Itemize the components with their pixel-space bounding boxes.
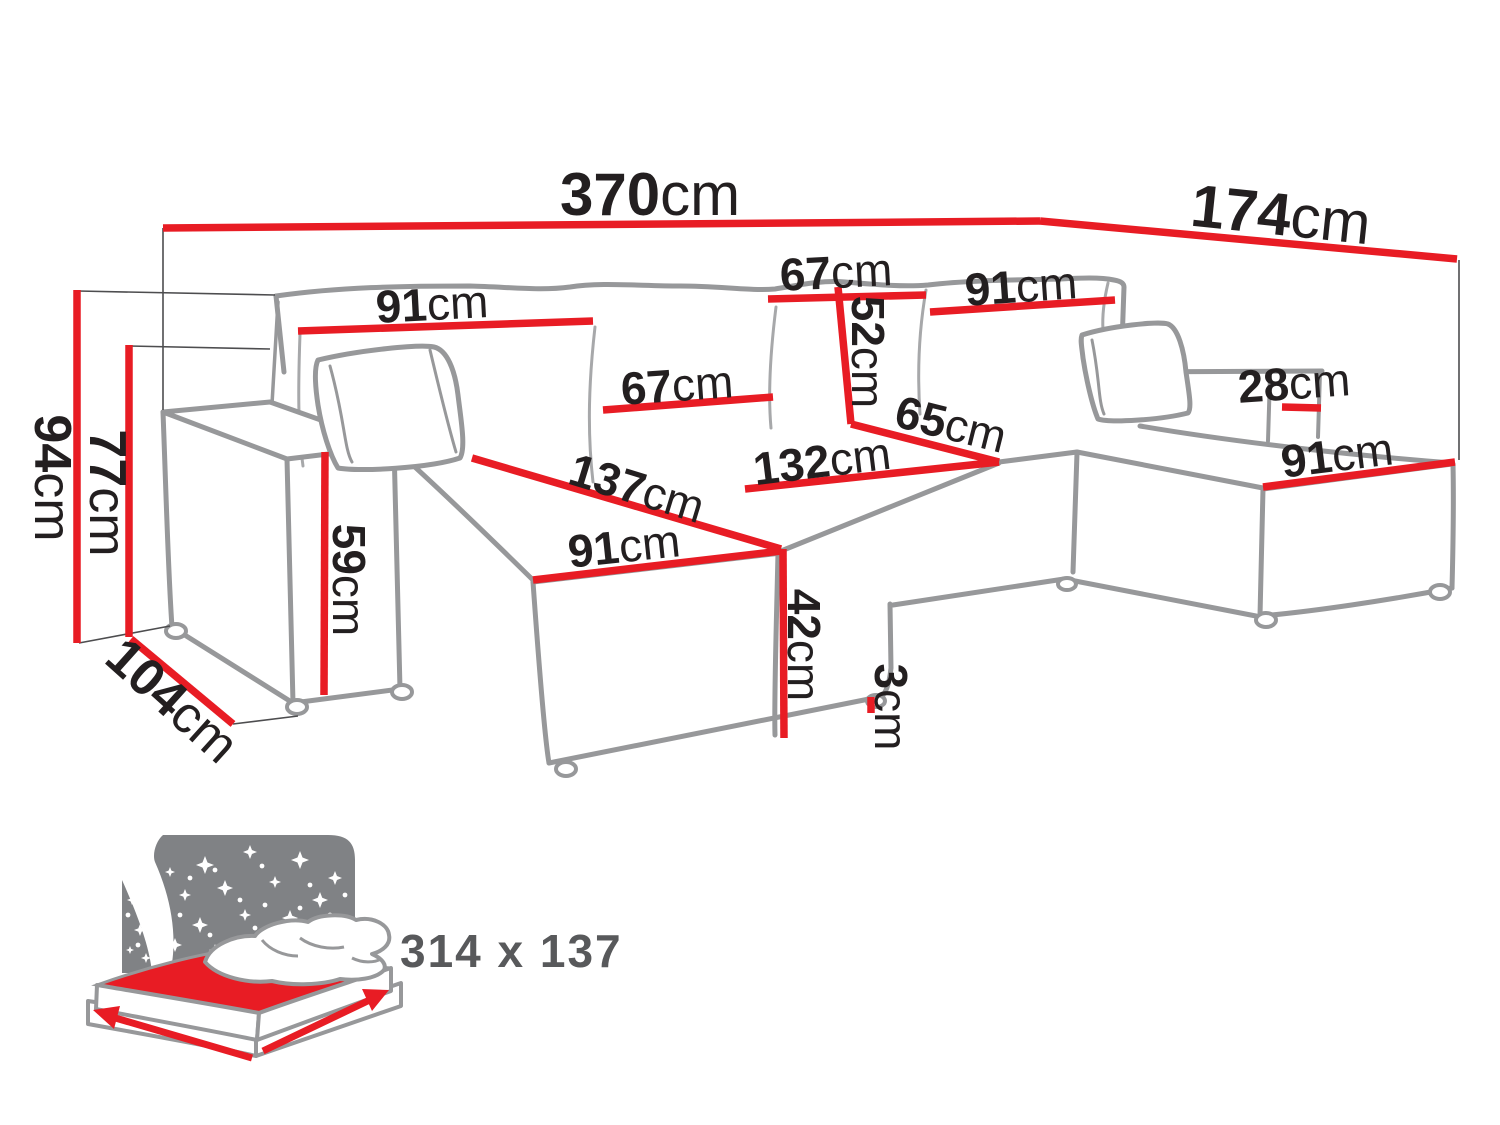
dimension-label-depth-armrest: 104cm [95, 627, 250, 775]
dimension-label-back-cushion-mid: 67cm [619, 355, 735, 415]
armrest-left-right-edge [394, 446, 400, 689]
dimension-label-height-backrest: 77cm [78, 429, 136, 556]
dimension-label-seat-width-center: 132cm [750, 427, 893, 495]
armrest-left-bottom-right [293, 689, 400, 703]
star-dot [238, 898, 243, 903]
dimension-label-back-cushion-mid-top: 67cm [778, 243, 893, 301]
star-dot [308, 883, 313, 888]
seat-center-bottom2 [1070, 580, 1256, 616]
dimension-label-chaise-right-length: 91cm [1278, 422, 1396, 487]
star-dot [136, 943, 141, 948]
chaise-right-left-edge [1260, 489, 1263, 616]
dimension-label-back-cushion-right: 91cm [963, 256, 1079, 316]
chaise-left-left-edge [533, 582, 549, 763]
chaise-right-bottom [1260, 588, 1452, 616]
star-dot [213, 868, 218, 873]
bed-size-label: 314 x 137 [400, 925, 623, 977]
dimension-label-seat-height: 42cm [778, 589, 830, 702]
dimension-label-leg-height: 3cm [865, 664, 917, 751]
armrest-left-corner [287, 459, 293, 703]
star-dot [188, 876, 193, 881]
armrest-left-front-edge [163, 412, 172, 627]
dimension-label-back-cushion-height: 52cm [842, 296, 894, 409]
dimension-label-height-total: 94cm [23, 414, 81, 541]
seat-center-corner [1073, 453, 1077, 572]
star-dot [126, 913, 131, 918]
chaise-right-front-top [1077, 452, 1263, 488]
chaise-left-corner-edge [775, 553, 778, 735]
star-dot [178, 913, 183, 918]
extension-line [129, 346, 270, 349]
star-dot [298, 906, 303, 911]
star-dot [343, 893, 348, 898]
pillow-left [315, 346, 462, 469]
backrest-panel-edge [272, 302, 278, 404]
star-dot [260, 864, 265, 869]
seat-center-front-edge [999, 452, 1077, 462]
dimension-label-armrest-height: 59cm [323, 524, 375, 637]
seat-center-bottom [893, 579, 1064, 605]
dimension-label-width-total: 370cm [560, 161, 740, 228]
dimension-labels: 370cm174cm91cm67cm91cm52cm67cm65cm132cm2… [23, 161, 1396, 775]
extension-line [233, 716, 298, 724]
extension-line [78, 291, 275, 295]
sleep-function-icon: 314 x 137 [88, 835, 623, 1058]
star-dot [263, 903, 268, 908]
dimension-label-armrest-width-right: 28cm [1236, 353, 1352, 413]
chaise-right-right-edge [1452, 464, 1453, 588]
star-dot [208, 933, 213, 938]
dimension-label-depth-right-total: 174cm [1188, 171, 1374, 256]
diagram-stage: 314 x 137 370cm174cm91cm67cm91cm52cm67cm… [0, 0, 1500, 1125]
dimension-label-back-cushion-left: 91cm [374, 275, 489, 333]
pillow-right [1081, 323, 1190, 421]
chaise-left-bottom [549, 699, 869, 763]
star-dot [253, 926, 258, 931]
